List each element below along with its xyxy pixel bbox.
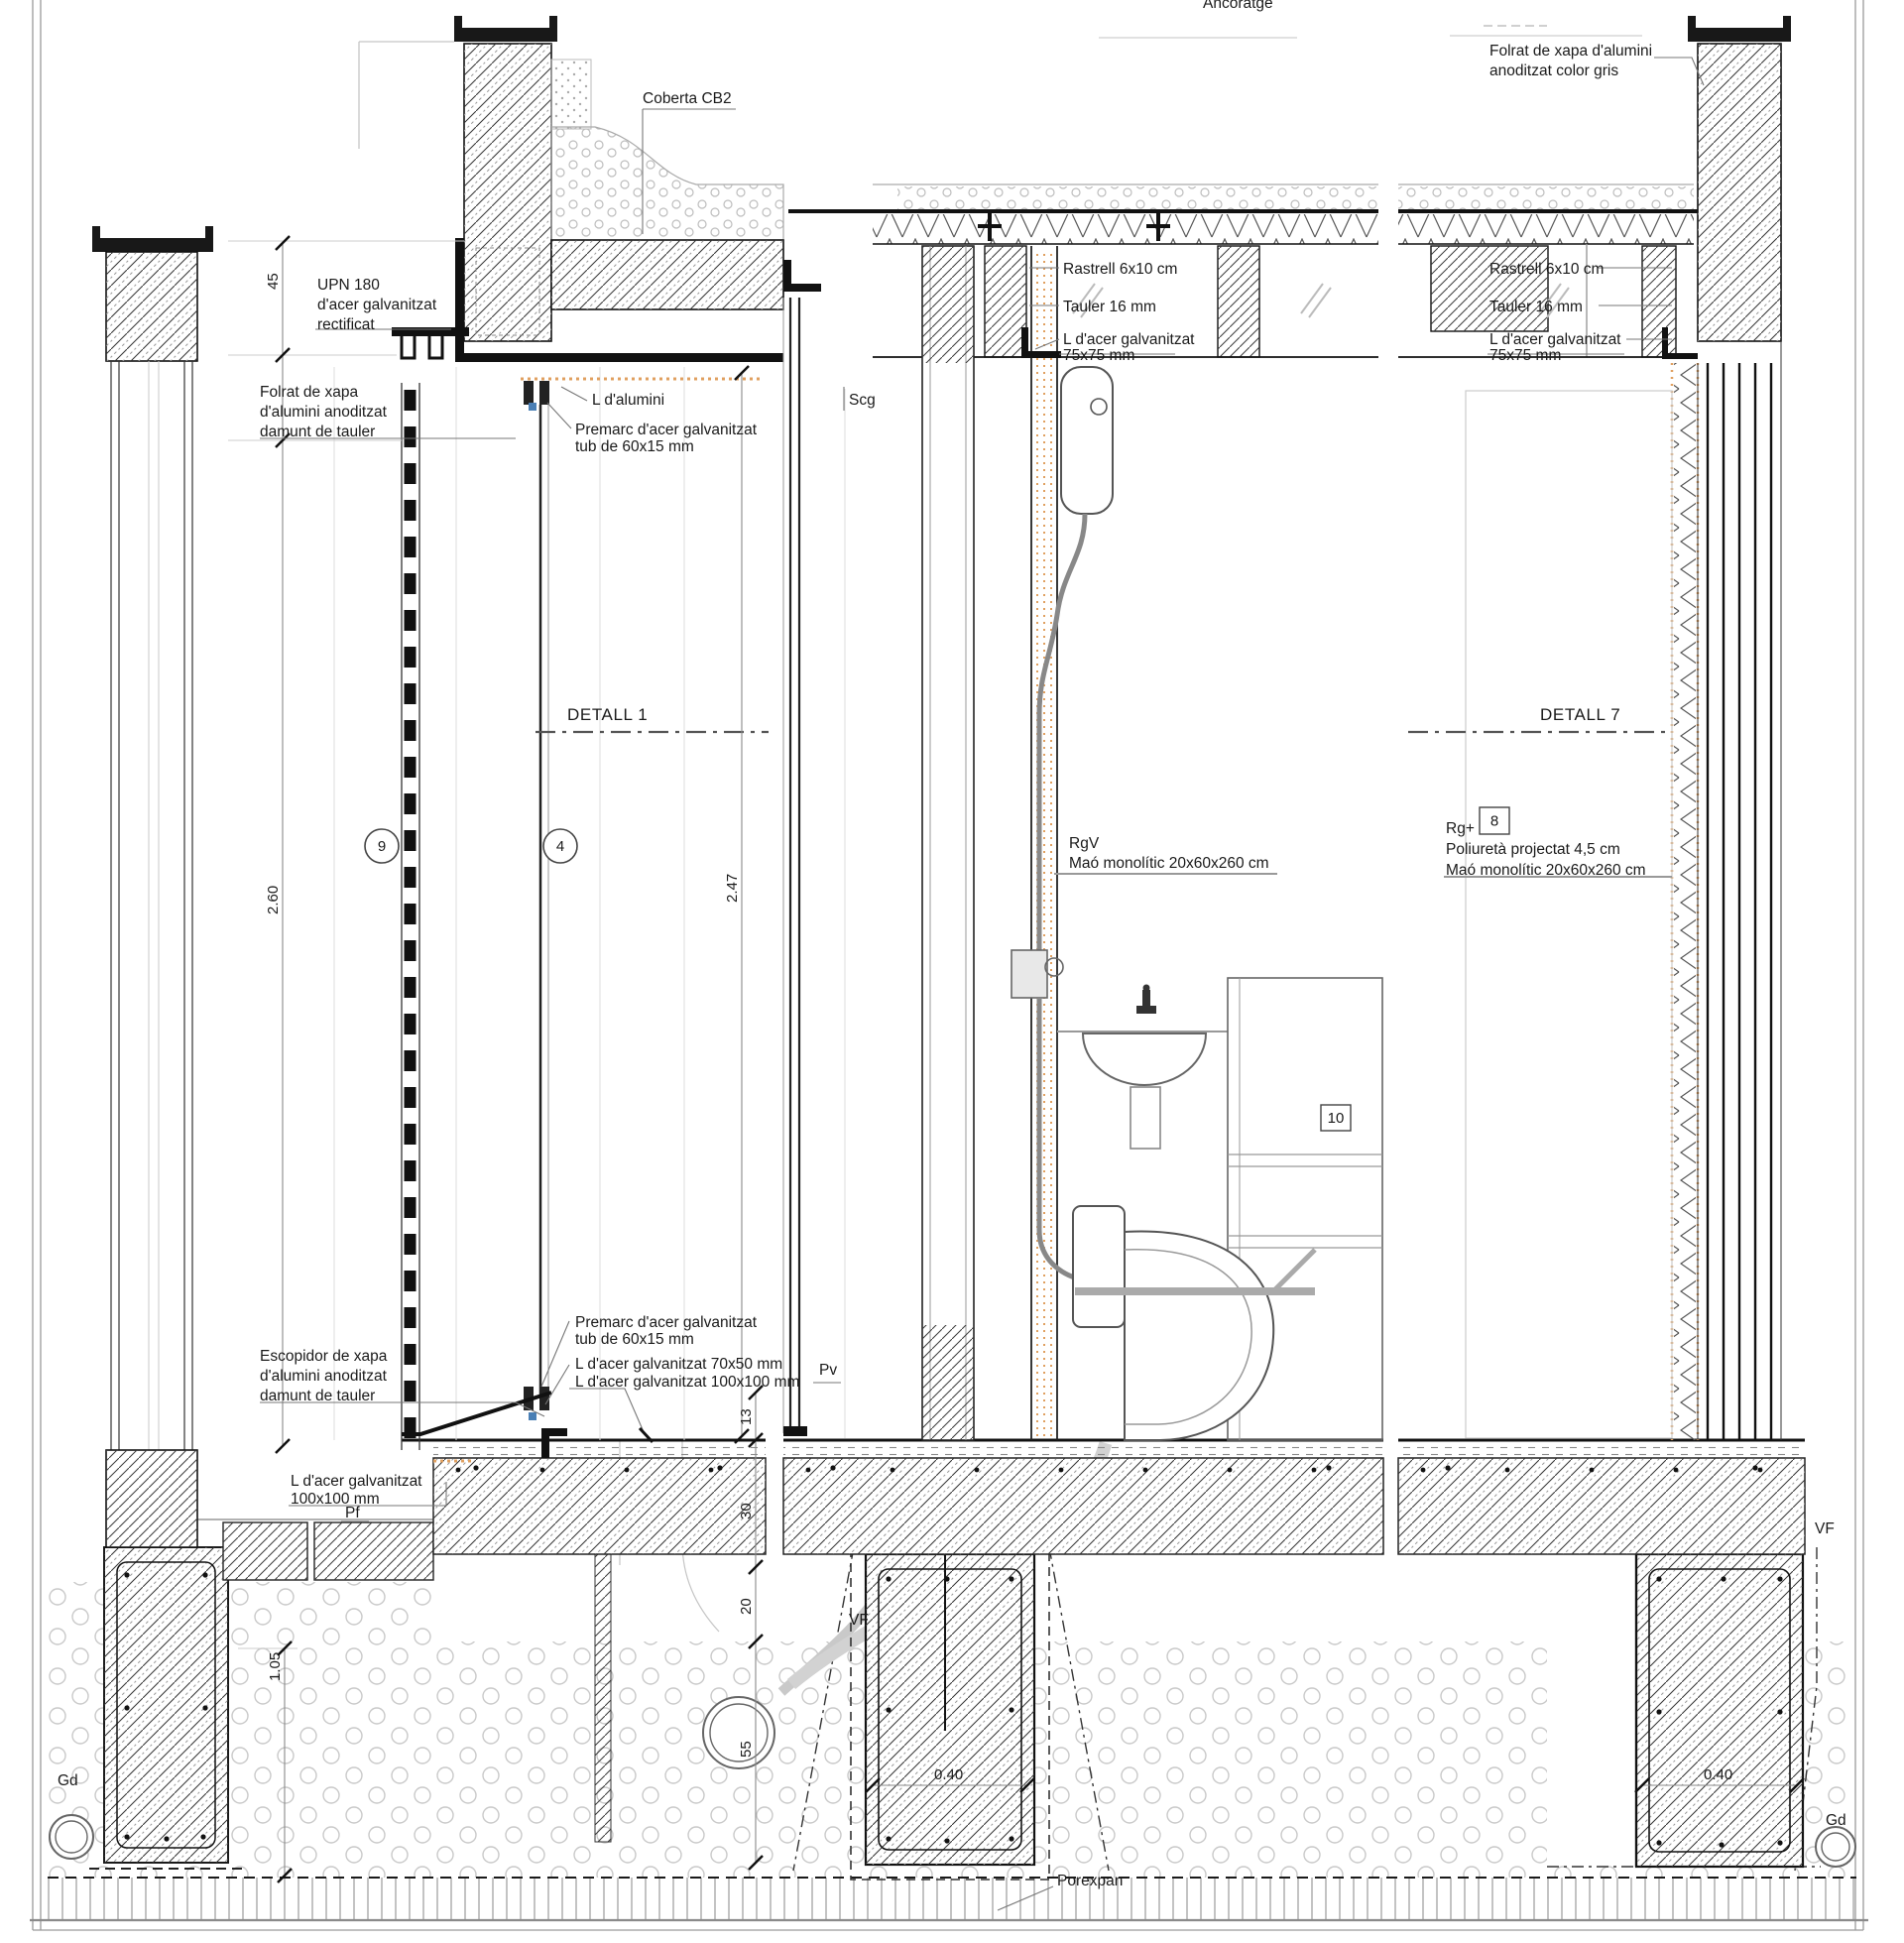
rebar-dot	[1143, 1468, 1148, 1473]
vf-left-label: VF	[849, 1612, 869, 1629]
rebar-dot	[124, 1834, 129, 1839]
rebar-dot	[1674, 1468, 1679, 1473]
pv-label: Pv	[819, 1362, 837, 1379]
tauler-mid-label: Tauler 16 mm	[1063, 299, 1156, 315]
callout-circle-9-label: 9	[378, 838, 386, 855]
steel-l-horizontal	[455, 353, 783, 362]
rebar-dot	[717, 1465, 722, 1470]
blind-guide-block	[405, 1197, 416, 1218]
blind-guide-block	[405, 1271, 416, 1291]
room-outline-right	[1466, 391, 1672, 1438]
callout-box-10-label: 10	[1328, 1110, 1345, 1127]
window-left	[334, 367, 764, 1461]
blind-guide-block	[405, 1234, 416, 1255]
rebar-dot	[1059, 1468, 1064, 1473]
rebar-dot	[164, 1836, 169, 1841]
rebar-dot	[886, 1707, 891, 1712]
blind-guide-block	[405, 904, 416, 924]
rebar-dot	[124, 1705, 129, 1710]
blind-guide-block	[405, 1014, 416, 1034]
rebar-dot	[625, 1468, 630, 1473]
detall-1-title: DETALL 1	[567, 705, 648, 724]
coberta-label: Coberta CB2	[643, 90, 732, 107]
bathroom-fixtures	[1011, 367, 1382, 1440]
blind-guide-block	[405, 390, 416, 411]
l-alumini-label: L d'alumini	[592, 392, 664, 409]
rebar-dot	[1721, 1576, 1725, 1581]
rebar-dot	[806, 1468, 811, 1473]
blind-guide-block	[405, 1124, 416, 1145]
pier-left	[89, 1547, 243, 1869]
escopidor-label: Escopidor de xapad'alumini anoditzatdamu…	[260, 1348, 388, 1404]
blind-guide-block	[405, 830, 416, 851]
dim-2-60: 2.60	[265, 886, 282, 914]
blind-guide-block	[405, 1307, 416, 1328]
dim-040-center: 0.40	[934, 1766, 963, 1783]
roller-blind-guide	[405, 390, 416, 1438]
brick-wall-section	[1708, 363, 1771, 1440]
slab-right	[1398, 1440, 1805, 1554]
blind-guide-block	[405, 977, 416, 998]
l-acer-7050-label: L d'acer galvanitzat 70x50 mm	[575, 1356, 782, 1373]
rg-plus-label: Rg+Poliuretà projectat 4,5 cmMaó monolít…	[1446, 820, 1646, 879]
rebar-dot	[886, 1576, 891, 1581]
rebar-dot	[1228, 1468, 1233, 1473]
sink-basin	[1083, 1033, 1206, 1085]
rebar-dot	[540, 1468, 545, 1473]
blind-guide-block	[405, 573, 416, 594]
blind-guide-block	[405, 757, 416, 778]
rebar-dot	[944, 1576, 949, 1581]
scg-label: Scg	[849, 392, 876, 409]
l-acer-75-mid-label: L d'acer galvanitzat75x75 mm	[1063, 331, 1195, 364]
rebar-dot	[944, 1838, 949, 1843]
rebar-dot	[830, 1465, 835, 1470]
detall-7-title: DETALL 7	[1540, 705, 1620, 724]
anchor-note: Ancoratge	[1203, 0, 1273, 12]
rebar-dot	[1421, 1468, 1426, 1473]
rebar-dot	[1777, 1709, 1782, 1714]
folrat-right-label: Folrat de xapa d'aluminianoditzat color …	[1489, 43, 1652, 79]
toilet-tank	[1073, 1206, 1125, 1327]
rebar-dot	[1505, 1468, 1510, 1473]
tauler-right-label: Tauler 16 mm	[1489, 299, 1583, 315]
blind-guide-block	[405, 426, 416, 447]
drawing-sheet: 94810 AncoratgeCoberta CB2Folrat de xapa…	[0, 0, 1904, 1943]
blind-guide-block	[405, 1050, 416, 1071]
rebar-dot	[1009, 1707, 1013, 1712]
rebar-dot	[1590, 1468, 1595, 1473]
rebar-dot	[891, 1468, 895, 1473]
parapet-roof-left	[392, 16, 783, 362]
rebar-dot	[1656, 1840, 1661, 1845]
blind-guide-block	[405, 1160, 416, 1181]
flush-pipe	[1039, 514, 1085, 950]
dim-55: 55	[738, 1741, 755, 1758]
dim-13: 13	[738, 1408, 755, 1425]
rgv-label: RgVMaó monolític 20x60x260 cm	[1069, 835, 1269, 872]
section-drawing: 94810 AncoratgeCoberta CB2Folrat de xapa…	[0, 0, 1904, 1943]
rebar-dot	[200, 1834, 205, 1839]
upn-label: UPN 180d'acer galvanitzatrectificat	[317, 277, 437, 333]
vf-right-label: VF	[1815, 1520, 1835, 1537]
dim-45: 45	[265, 273, 282, 290]
footing-center	[851, 1542, 1049, 1880]
rebar-dot	[709, 1468, 714, 1473]
gd-left-label: Gd	[58, 1772, 78, 1789]
blind-guide-block	[405, 647, 416, 668]
blind-guide-block	[405, 867, 416, 888]
blind-guide-block	[405, 610, 416, 631]
rastrell-right-label: Rastrell 6x10 cm	[1489, 261, 1604, 278]
rebar-dot	[1656, 1576, 1661, 1581]
l-acer-100-mid-label: L d'acer galvanitzat 100x100 mm	[575, 1374, 799, 1391]
rebar-dot	[1445, 1465, 1450, 1470]
roof-gravel-left	[551, 127, 783, 240]
rebar-dot	[1009, 1576, 1013, 1581]
blind-guide-block	[405, 793, 416, 814]
callout-box-8-label: 8	[1490, 813, 1498, 830]
rebar-dot	[456, 1468, 461, 1473]
slab-left	[402, 1440, 766, 1554]
slab-center	[783, 1440, 1383, 1554]
rebar-dot	[975, 1468, 980, 1473]
gd-right-label: Gd	[1826, 1812, 1846, 1829]
rebar-dot	[202, 1705, 207, 1710]
dim-2-47: 2.47	[724, 874, 741, 903]
flush-valve	[1091, 399, 1107, 415]
rebar-dot	[1758, 1468, 1763, 1473]
rebar-dot	[202, 1572, 207, 1577]
blind-guide-block	[405, 720, 416, 741]
rebar-dot	[1777, 1576, 1782, 1581]
blind-guide-block	[405, 1344, 416, 1365]
premarc-top-label: Premarc d'acer galvanitzattub de 60x15 m…	[575, 422, 758, 455]
blind-guide-block	[405, 537, 416, 557]
rastrell-mid-label: Rastrell 6x10 cm	[1063, 261, 1177, 278]
footing-right	[1636, 1554, 1803, 1867]
blind-guide-block	[405, 683, 416, 704]
interior-column-center	[922, 246, 974, 1440]
rebar-dot	[124, 1572, 129, 1577]
steel-l-vertical	[455, 238, 464, 359]
window-center	[783, 260, 845, 1438]
dim-30: 30	[738, 1503, 755, 1519]
rebar-dot	[1752, 1465, 1757, 1470]
cistern	[1061, 367, 1113, 514]
blind-guide-block	[405, 500, 416, 521]
insulation-strip	[1674, 363, 1696, 1440]
blind-guide-block	[405, 1381, 416, 1401]
rebar-dot	[473, 1465, 478, 1470]
blind-guide-block	[405, 1087, 416, 1108]
dim-040-right: 0.40	[1704, 1766, 1732, 1783]
rebar-dot	[1312, 1468, 1317, 1473]
rebar-dot	[1326, 1465, 1331, 1470]
l-acer-100-left-label: L d'acer galvanitzat100x100 mm	[291, 1473, 422, 1508]
rebar-dot	[1719, 1842, 1724, 1847]
premarc-bottom-label: Premarc d'acer galvanitzattub de 60x15 m…	[575, 1314, 758, 1348]
pf-label: Pf	[345, 1505, 360, 1521]
rebar-dot	[1777, 1840, 1782, 1845]
porexpan-label: Porexpan	[1057, 1873, 1123, 1889]
left-column-assembly	[92, 226, 213, 1547]
l-acer-75-right-label: L d'acer galvanitzat75x75 mm	[1489, 331, 1621, 364]
callout-circle-4-label: 4	[556, 838, 564, 855]
dim-1-05: 1.05	[267, 1652, 284, 1681]
shutoff-box	[1011, 950, 1047, 998]
rebar-dot	[1656, 1709, 1661, 1714]
blind-guide-block	[405, 463, 416, 484]
rebar-dot	[1009, 1836, 1013, 1841]
folrat-left-label: Folrat de xapad'alumini anoditzatdamunt …	[260, 384, 388, 440]
blind-guide-block	[405, 940, 416, 961]
sink-pedestal	[1130, 1087, 1160, 1149]
dim-20: 20	[738, 1598, 755, 1615]
upn-hooks	[402, 336, 442, 358]
faucet	[1136, 985, 1156, 1015]
rebar-dot	[886, 1836, 891, 1841]
